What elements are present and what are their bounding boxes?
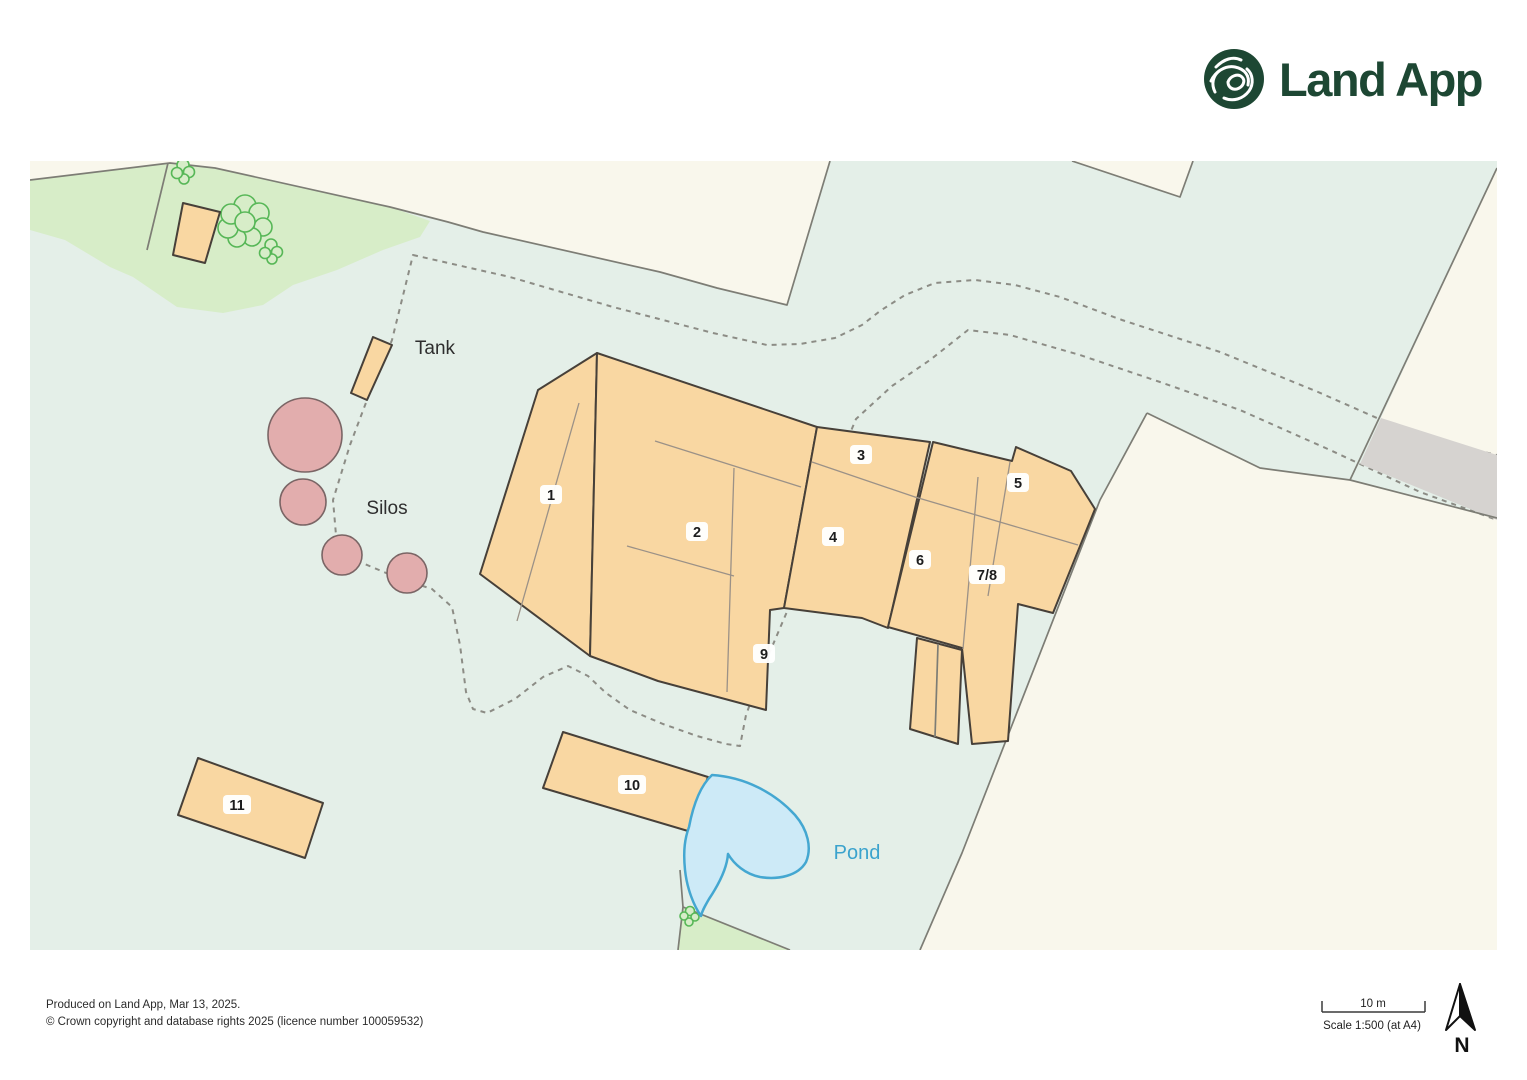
scale-distance-label: 10 m	[1360, 998, 1386, 1010]
produced-line: Produced on Land App, Mar 13, 2025.	[46, 999, 240, 1011]
building-badge: 2	[686, 522, 708, 541]
logo-text: Land App	[1279, 52, 1482, 107]
building-badge: 1	[540, 485, 562, 504]
svg-text:7/8: 7/8	[977, 568, 997, 584]
tank-label: Tank	[415, 338, 456, 359]
copyright-line: © Crown copyright and database rights 20…	[46, 1016, 423, 1028]
north-label: N	[1454, 1034, 1469, 1057]
north-arrow-icon	[1446, 984, 1475, 1030]
building-badge: 10	[618, 775, 646, 794]
svg-text:5: 5	[1014, 476, 1022, 492]
svg-text:1: 1	[547, 488, 555, 504]
svg-text:10: 10	[624, 778, 640, 794]
building-badge: 11	[223, 795, 251, 814]
building-badge: 3	[850, 445, 872, 464]
svg-text:2: 2	[693, 525, 701, 541]
svg-text:6: 6	[916, 553, 924, 569]
svg-text:4: 4	[829, 530, 837, 546]
site-map: Tank Silos Pond 1 2 3 4 5 6 7/8 9 10 11	[30, 161, 1497, 950]
svg-text:11: 11	[229, 798, 244, 814]
map-widgets: 10 m Scale 1:500 (at A4) N	[1310, 978, 1495, 1065]
building-badge: 7/8	[969, 565, 1005, 584]
building-badge: 6	[909, 550, 931, 569]
building-badge: 4	[822, 527, 844, 546]
svg-text:9: 9	[760, 647, 768, 663]
building-badge: 9	[753, 644, 775, 663]
svg-text:3: 3	[857, 448, 865, 464]
map-canvas: Tank Silos Pond 1 2 3 4 5 6 7/8 9 10 11	[30, 161, 1497, 950]
pond-label: Pond	[834, 842, 881, 864]
building-badge: 5	[1007, 473, 1029, 492]
silos-label: Silos	[366, 498, 407, 519]
land-app-logo: Land App	[1202, 47, 1482, 111]
scale-ratio-label: Scale 1:500 (at A4)	[1323, 1020, 1421, 1032]
land-app-logo-icon	[1202, 47, 1266, 111]
